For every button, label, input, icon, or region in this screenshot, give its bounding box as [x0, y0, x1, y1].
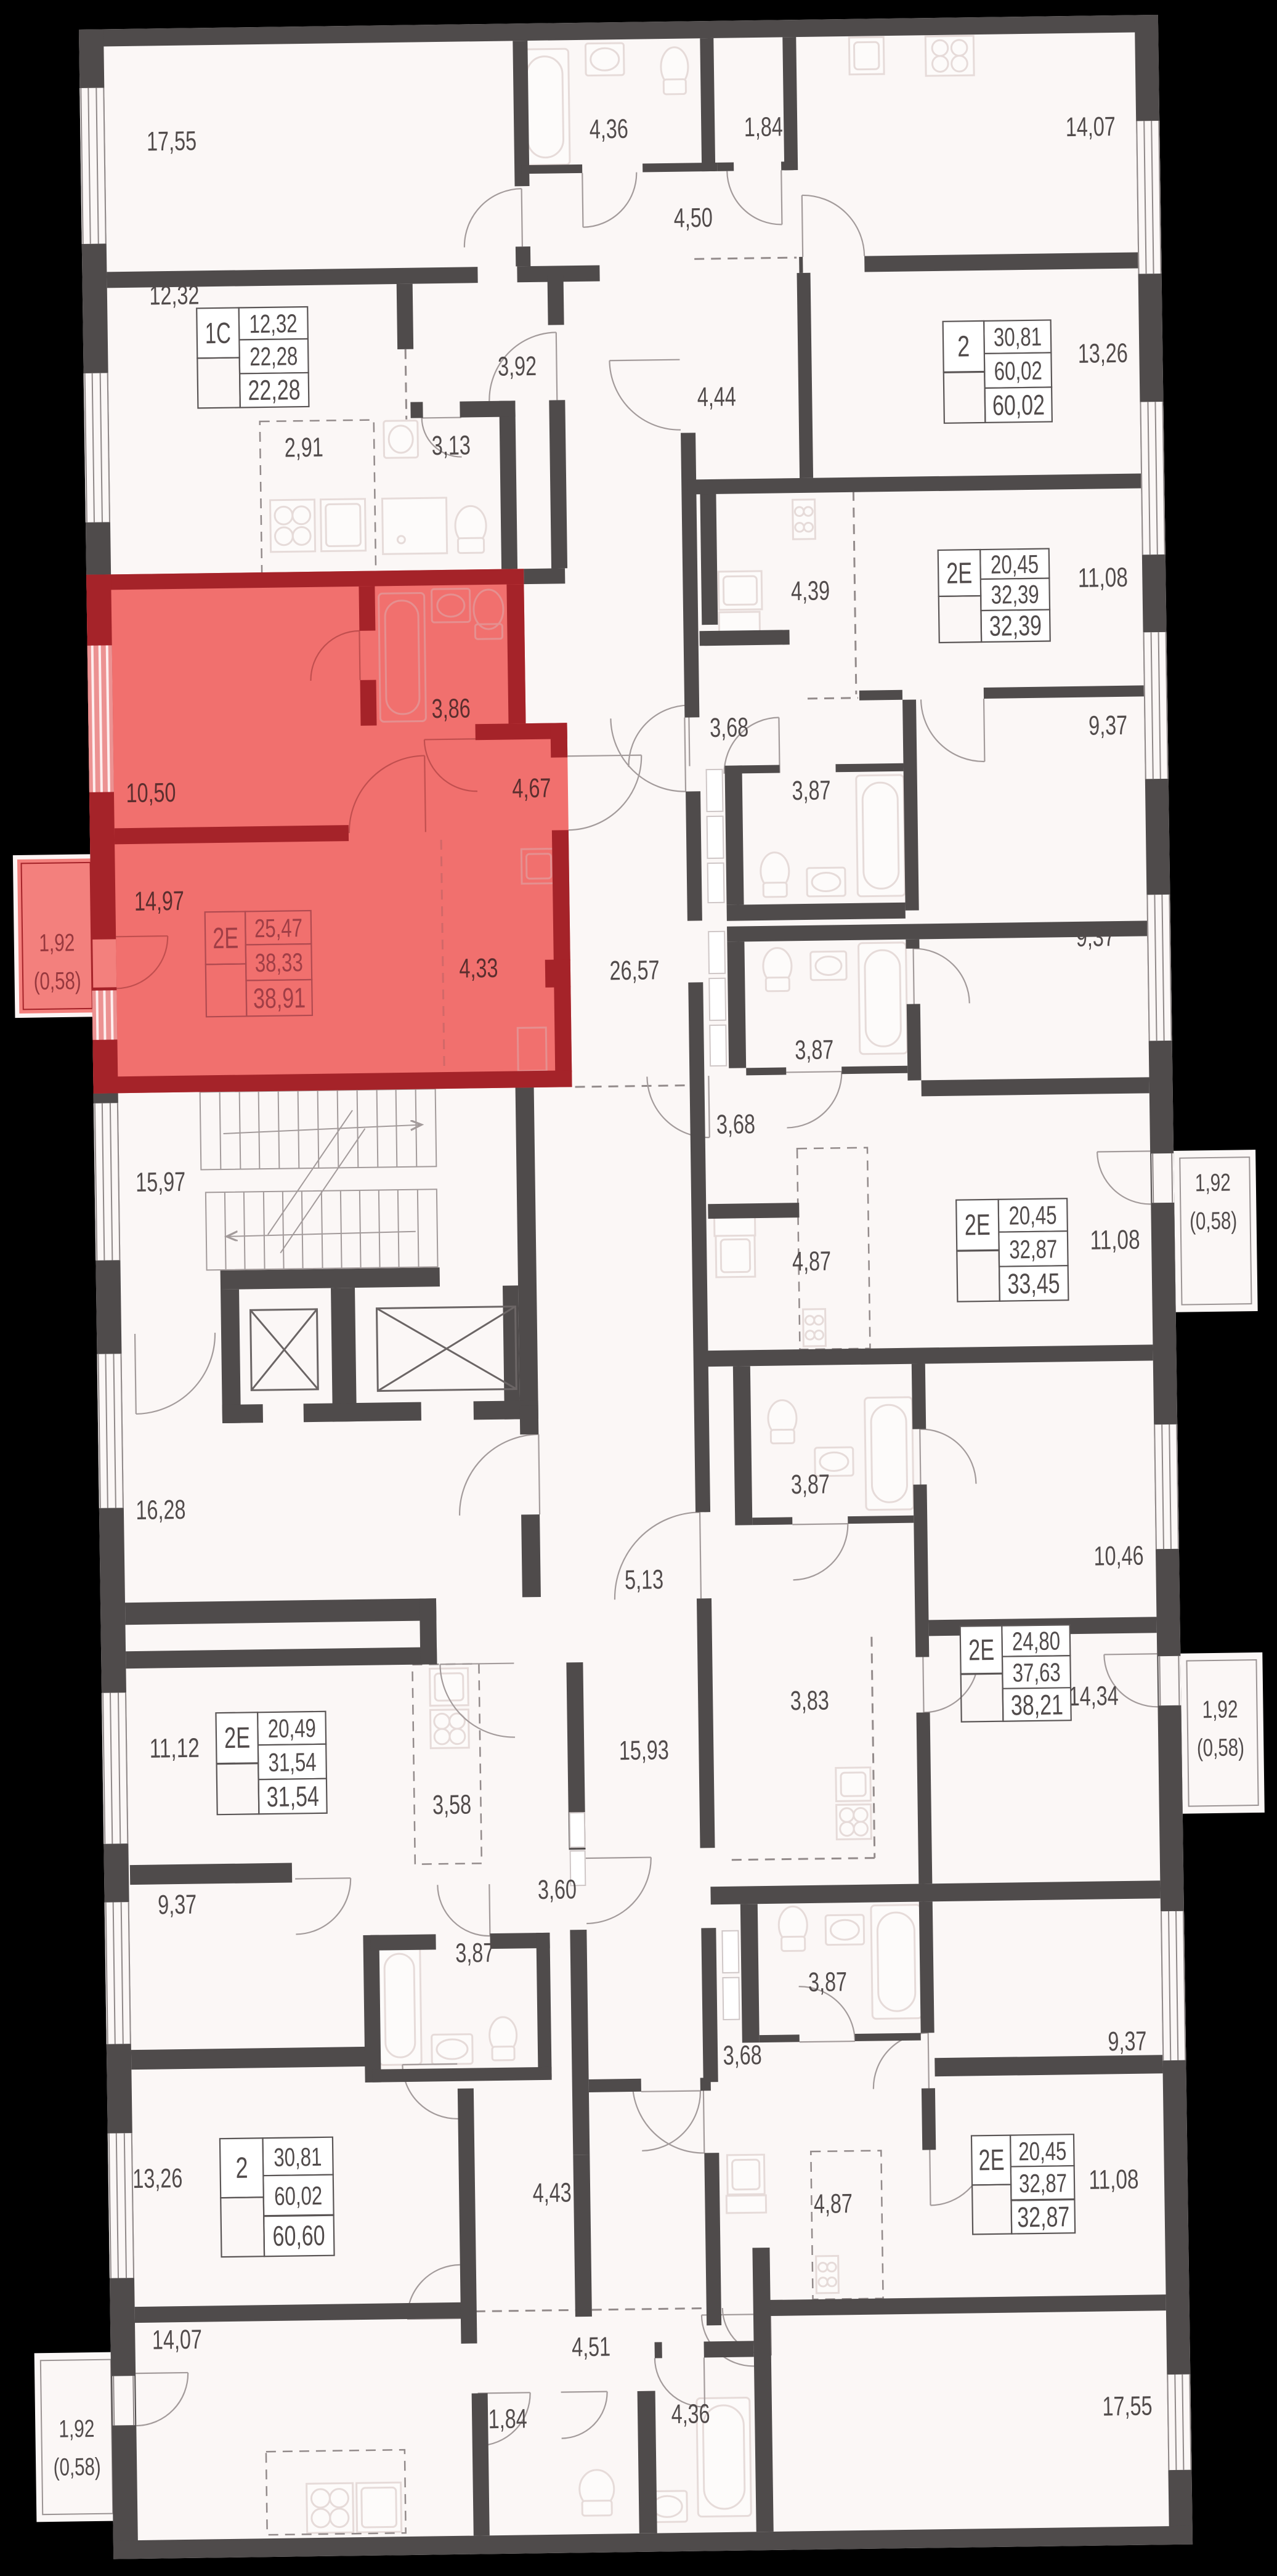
svg-text:2Е: 2Е	[213, 922, 239, 956]
svg-text:3,68: 3,68	[716, 1109, 756, 1140]
svg-text:14,07: 14,07	[1065, 112, 1116, 142]
svg-text:1,92: 1,92	[39, 929, 75, 957]
svg-text:20,45: 20,45	[1008, 1200, 1057, 1230]
svg-text:4,67: 4,67	[512, 773, 551, 804]
svg-text:10,46: 10,46	[1093, 1541, 1144, 1572]
svg-text:17,55: 17,55	[147, 126, 197, 156]
svg-text:14,34: 14,34	[1068, 1681, 1119, 1712]
svg-text:3,58: 3,58	[432, 1790, 472, 1821]
svg-text:3,68: 3,68	[723, 2040, 762, 2071]
svg-text:32,87: 32,87	[1009, 1234, 1058, 1264]
svg-text:11,08: 11,08	[1078, 563, 1129, 593]
svg-text:(0,58): (0,58)	[53, 2453, 101, 2481]
svg-text:10,50: 10,50	[126, 778, 176, 808]
svg-text:1,92: 1,92	[1202, 1696, 1238, 1723]
svg-text:4,44: 4,44	[697, 381, 736, 412]
svg-text:32,87: 32,87	[1017, 2200, 1070, 2233]
svg-text:2Е: 2Е	[224, 1721, 251, 1755]
svg-text:1,84: 1,84	[488, 2403, 527, 2434]
svg-text:2Е: 2Е	[968, 1634, 995, 1667]
svg-text:9,37: 9,37	[158, 1890, 197, 1920]
svg-text:38,33: 38,33	[254, 948, 303, 977]
svg-text:2: 2	[235, 2152, 248, 2185]
svg-text:60,60: 60,60	[272, 2219, 325, 2252]
svg-text:26,57: 26,57	[609, 955, 660, 986]
svg-text:4,87: 4,87	[792, 1246, 832, 1277]
svg-text:33,45: 33,45	[1007, 1267, 1060, 1299]
svg-text:3,87: 3,87	[795, 1034, 834, 1065]
svg-text:20,45: 20,45	[991, 550, 1039, 579]
svg-text:4,87: 4,87	[814, 2188, 853, 2219]
svg-text:3,13: 3,13	[431, 430, 471, 461]
svg-text:2: 2	[957, 330, 970, 363]
svg-text:3,92: 3,92	[498, 351, 537, 382]
svg-text:4,39: 4,39	[791, 575, 830, 606]
svg-text:60,02: 60,02	[992, 389, 1045, 421]
svg-text:60,02: 60,02	[994, 356, 1042, 386]
svg-text:3,87: 3,87	[791, 1469, 830, 1500]
svg-text:5,13: 5,13	[625, 1564, 664, 1595]
svg-text:3,68: 3,68	[710, 712, 749, 743]
svg-text:14,07: 14,07	[152, 2325, 203, 2355]
svg-text:(0,58): (0,58)	[1197, 1734, 1245, 1761]
svg-text:20,49: 20,49	[267, 1713, 316, 1743]
svg-text:32,87: 32,87	[1019, 2168, 1068, 2198]
svg-text:11,08: 11,08	[1088, 2164, 1139, 2195]
svg-text:1,84: 1,84	[744, 112, 783, 142]
svg-text:1,92: 1,92	[59, 2415, 95, 2443]
svg-text:2Е: 2Е	[946, 557, 973, 590]
svg-text:30,81: 30,81	[274, 2142, 322, 2172]
svg-text:37,63: 37,63	[1012, 1657, 1061, 1687]
svg-text:22,28: 22,28	[249, 341, 298, 371]
svg-text:16,28: 16,28	[136, 1495, 186, 1526]
svg-text:14,97: 14,97	[134, 886, 185, 917]
svg-text:32,39: 32,39	[991, 580, 1039, 609]
svg-text:22,28: 22,28	[248, 373, 301, 406]
svg-text:(0,58): (0,58)	[33, 967, 81, 995]
svg-text:(0,58): (0,58)	[1190, 1207, 1238, 1235]
svg-text:25,47: 25,47	[254, 913, 303, 943]
svg-text:1С: 1С	[205, 317, 231, 351]
svg-text:30,81: 30,81	[994, 322, 1042, 352]
svg-text:17,55: 17,55	[1102, 2391, 1153, 2421]
svg-text:3,60: 3,60	[538, 1874, 577, 1905]
svg-text:60,02: 60,02	[274, 2181, 323, 2211]
svg-text:11,12: 11,12	[149, 1733, 200, 1764]
svg-text:3,86: 3,86	[431, 693, 471, 724]
svg-text:38,91: 38,91	[253, 981, 306, 1014]
svg-text:24,80: 24,80	[1012, 1626, 1061, 1656]
svg-text:13,26: 13,26	[132, 2163, 183, 2194]
svg-text:15,93: 15,93	[619, 1735, 670, 1766]
svg-text:4,33: 4,33	[459, 953, 498, 984]
svg-text:38,21: 38,21	[1011, 1688, 1064, 1721]
svg-text:4,36: 4,36	[589, 114, 628, 145]
svg-text:11,08: 11,08	[1090, 1225, 1140, 1256]
svg-text:2Е: 2Е	[964, 1209, 991, 1242]
svg-text:31,54: 31,54	[268, 1747, 317, 1777]
svg-text:9,37: 9,37	[1108, 2026, 1147, 2057]
svg-text:3,87: 3,87	[792, 775, 831, 806]
svg-text:9,37: 9,37	[1088, 710, 1128, 741]
svg-text:3,87: 3,87	[455, 1938, 495, 1969]
svg-text:31,54: 31,54	[266, 1780, 319, 1813]
svg-text:20,45: 20,45	[1018, 2136, 1067, 2166]
svg-text:4,50: 4,50	[673, 203, 713, 234]
svg-text:15,97: 15,97	[136, 1167, 186, 1198]
svg-text:9,37: 9,37	[1076, 922, 1116, 953]
svg-text:4,43: 4,43	[532, 2177, 572, 2208]
svg-text:3,87: 3,87	[808, 1967, 848, 1997]
svg-text:2,91: 2,91	[284, 433, 323, 463]
svg-text:12,32: 12,32	[149, 280, 200, 311]
svg-text:12,32: 12,32	[249, 309, 298, 338]
svg-text:4,51: 4,51	[572, 2332, 611, 2363]
svg-text:3,83: 3,83	[790, 1686, 829, 1717]
svg-text:32,39: 32,39	[989, 609, 1042, 642]
svg-text:13,26: 13,26	[1078, 338, 1129, 369]
svg-text:1,92: 1,92	[1195, 1169, 1231, 1197]
svg-text:2Е: 2Е	[978, 2144, 1005, 2177]
svg-text:4,36: 4,36	[671, 2399, 710, 2429]
